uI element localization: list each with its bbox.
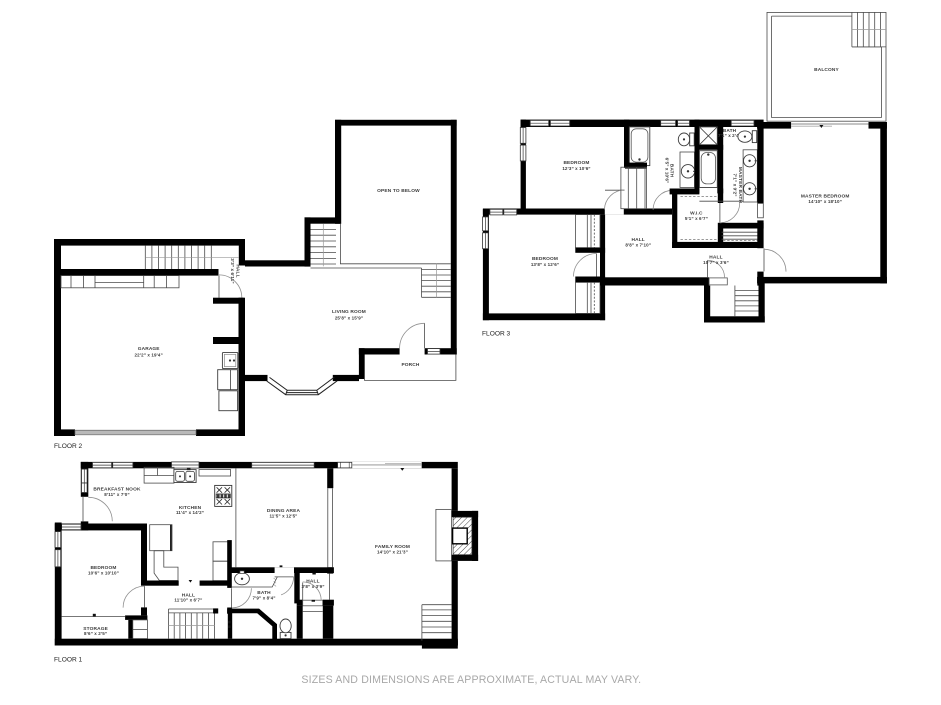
svg-text:25’8” x 15’9”: 25’8” x 15’9” — [335, 316, 363, 321]
svg-text:BALCONY: BALCONY — [814, 67, 839, 73]
svg-text:5’1” x 6’7”: 5’1” x 6’7” — [685, 216, 708, 221]
svg-text:FLOOR 3: FLOOR 3 — [482, 331, 511, 338]
svg-text:8’6” x 2’5”: 8’6” x 2’5” — [84, 631, 107, 636]
svg-text:GARAGE: GARAGE — [138, 346, 161, 352]
svg-text:14’10” x 21’3”: 14’10” x 21’3” — [377, 550, 408, 555]
svg-text:LIVING ROOM: LIVING ROOM — [332, 309, 366, 315]
svg-text:SIZES AND DIMENSIONS ARE APPRO: SIZES AND DIMENSIONS ARE APPROXIMATE, AC… — [301, 674, 641, 686]
svg-text:11’5” x 12’5”: 11’5” x 12’5” — [269, 513, 297, 518]
svg-text:14’10” x 18’10”: 14’10” x 18’10” — [808, 199, 842, 204]
svg-text:8’8” x 7’10”: 8’8” x 7’10” — [625, 243, 651, 248]
svg-text:PORCH: PORCH — [401, 362, 419, 368]
svg-text:11’10” x 6’7”: 11’10” x 6’7” — [174, 598, 202, 603]
svg-text:3’3” x 6’11”: 3’3” x 6’11” — [230, 258, 235, 283]
svg-text:10’6” x 10’10”: 10’6” x 10’10” — [88, 570, 119, 575]
svg-text:10’7” x 3’6”: 10’7” x 3’6” — [703, 260, 729, 265]
svg-text:12’3” x 10’6”: 12’3” x 10’6” — [562, 166, 590, 171]
svg-text:FLOOR 2: FLOOR 2 — [54, 443, 83, 450]
svg-text:11’4” x 14’2”: 11’4” x 14’2” — [176, 510, 204, 515]
svg-text:3’8” x 3’9”: 3’8” x 3’9” — [301, 584, 324, 589]
svg-text:OPEN TO BELOW: OPEN TO BELOW — [377, 188, 420, 194]
svg-text:7’9” x 8’4”: 7’9” x 8’4” — [252, 595, 275, 600]
svg-text:FLOOR 1: FLOOR 1 — [54, 657, 83, 664]
svg-text:22’2” x 19’4”: 22’2” x 19’4” — [135, 353, 163, 358]
svg-text:6’5” x 10’6”: 6’5” x 10’6” — [665, 158, 670, 184]
svg-text:8’11” x 7’0”: 8’11” x 7’0” — [104, 492, 129, 497]
svg-text:7’1” x 9’2”: 7’1” x 9’2” — [733, 173, 738, 196]
svg-text:13’8” x 12’6”: 13’8” x 12’6” — [531, 262, 559, 267]
